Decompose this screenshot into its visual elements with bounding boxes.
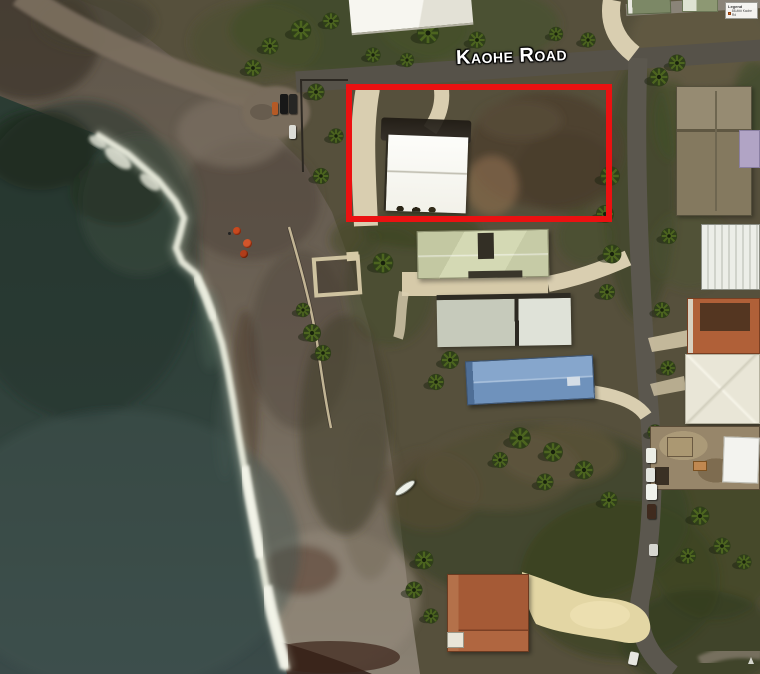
parked-car <box>646 484 657 500</box>
concrete-ruin-walls <box>312 254 363 297</box>
terracotta-roof-house-south <box>447 574 529 652</box>
pale-green-hip-roof-house <box>417 229 550 279</box>
parked-car <box>649 544 658 556</box>
legend-marker-icon <box>728 12 731 15</box>
parked-car <box>289 125 296 139</box>
lanai-shadow <box>468 270 522 278</box>
parked-car <box>646 448 656 463</box>
construction-white-roof <box>722 436 760 483</box>
beach-umbrella <box>240 250 248 258</box>
material-crate <box>693 461 707 471</box>
ruin-wall-corner <box>346 251 359 261</box>
white-carport-east <box>701 224 760 290</box>
equipment <box>655 467 669 485</box>
property-highlight-box <box>346 84 612 222</box>
green-roof-shed-north-a <box>627 0 672 15</box>
courtyard-opening <box>478 233 494 259</box>
legend-entry: 88-### Kaohe Rd <box>732 9 755 17</box>
beach-umbrella <box>233 227 241 235</box>
terracotta-roof-house-east <box>687 298 760 354</box>
roof-ridge <box>715 91 717 211</box>
parked-car <box>289 94 297 114</box>
parked-car <box>646 468 655 482</box>
parked-car <box>647 504 656 519</box>
aerial-map: Kaohe Road Legend 88-### Kaohe Rd <box>0 0 760 674</box>
material-stack <box>667 437 693 457</box>
construction-site <box>650 426 760 490</box>
roof-vent <box>567 376 580 386</box>
parked-car <box>280 94 288 114</box>
north-arrow-icon <box>748 657 754 664</box>
parked-car <box>272 102 278 115</box>
twin-gray-roof-house <box>437 293 572 347</box>
lavender-roof-house-east <box>739 130 760 168</box>
green-roof-shed-north-b <box>682 0 718 12</box>
cream-hip-roof-house-east <box>685 354 760 424</box>
porch-roof <box>447 632 464 648</box>
roof-upper-section <box>700 303 750 331</box>
beach-umbrella <box>243 239 252 248</box>
map-legend: Legend 88-### Kaohe Rd <box>725 2 758 19</box>
blue-metal-roof-building <box>465 355 595 406</box>
beach-object <box>228 232 231 235</box>
